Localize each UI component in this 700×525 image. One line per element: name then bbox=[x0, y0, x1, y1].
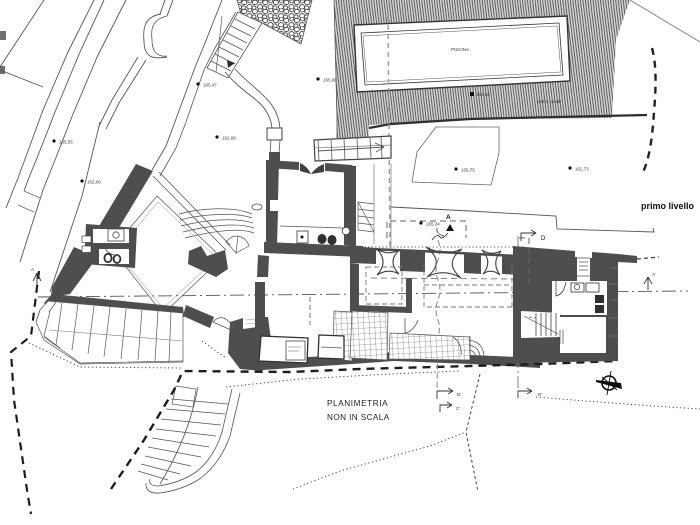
svg-text:165,08: 165,08 bbox=[323, 78, 337, 83]
svg-text:B': B' bbox=[457, 392, 461, 397]
svg-text:165,34: 165,34 bbox=[426, 222, 440, 227]
svg-text:165,47: 165,47 bbox=[203, 83, 217, 88]
svg-text:162,68: 162,68 bbox=[222, 136, 236, 141]
svg-text:A: A bbox=[31, 267, 34, 272]
svg-text:A': A' bbox=[652, 272, 656, 277]
svg-text:PISCINA: PISCINA bbox=[451, 47, 469, 52]
svg-text:A: A bbox=[446, 214, 451, 221]
svg-text:C': C' bbox=[456, 406, 460, 411]
svg-text:162,00: 162,00 bbox=[87, 180, 101, 185]
svg-text:PLANIMETRIA: PLANIMETRIA bbox=[327, 399, 388, 408]
svg-text:162,73: 162,73 bbox=[575, 167, 589, 172]
svg-text:165,75: 165,75 bbox=[461, 168, 475, 173]
svg-text:NON IN SCALA: NON IN SCALA bbox=[327, 413, 390, 422]
svg-text:165,05: 165,05 bbox=[59, 140, 73, 145]
svg-text:D': D' bbox=[538, 392, 542, 397]
svg-text:163,65: 163,65 bbox=[476, 92, 490, 97]
svg-text:pietra locale: pietra locale bbox=[537, 99, 562, 104]
svg-text:primo livello: primo livello bbox=[641, 201, 695, 211]
svg-text:D: D bbox=[541, 236, 546, 242]
